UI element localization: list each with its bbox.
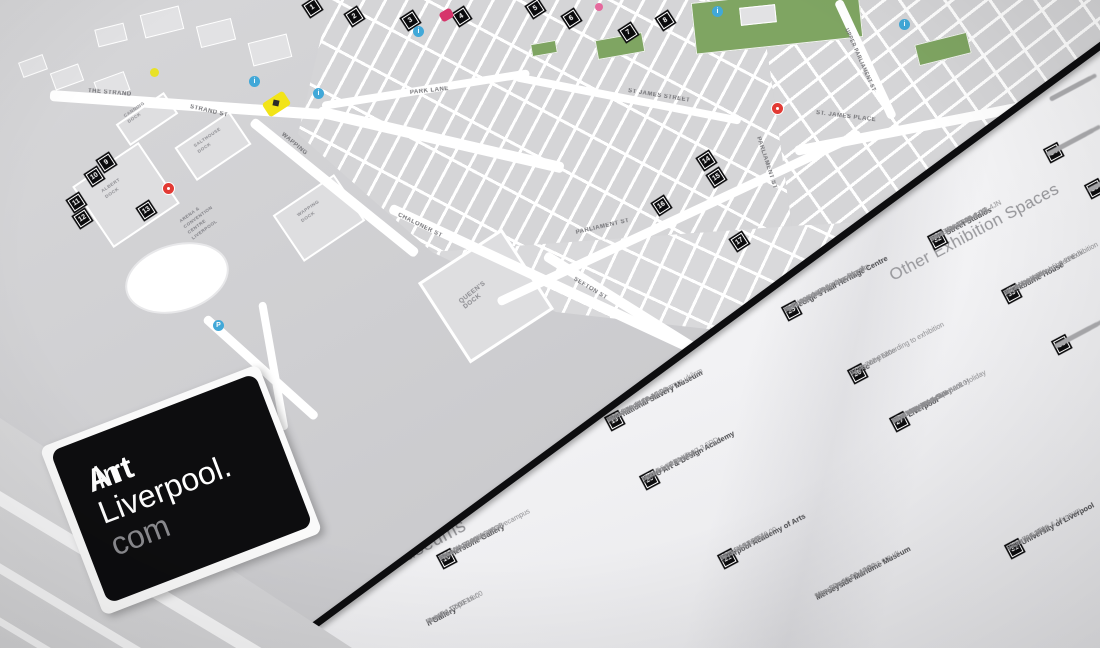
wapping-dock-shape — [273, 174, 366, 262]
salthouse-dock-shape — [174, 111, 251, 181]
pink-dot-marker — [595, 3, 603, 11]
arena-oval — [119, 233, 235, 323]
building-block — [18, 54, 48, 78]
info-icon: i — [899, 19, 910, 30]
building-block — [140, 6, 185, 39]
red-info-marker — [162, 182, 175, 195]
red-info-marker — [771, 102, 784, 115]
building-block — [248, 34, 293, 67]
info-icon: i — [413, 26, 424, 37]
map-marker-badge: 1 — [304, 0, 322, 16]
parking-icon: P — [213, 320, 224, 331]
albert-dock-shape — [72, 142, 180, 248]
arena-label: ARENA & CONVENTION CENTRE LIVERPOOL — [178, 198, 222, 241]
building-in-park — [739, 4, 777, 26]
yellow-marker-glyph — [272, 99, 279, 106]
building-block — [50, 63, 84, 90]
building-block — [94, 23, 127, 48]
photo-of-folded-map: THE STRAND STRAND ST WAPPING CHALONER ST… — [0, 0, 1100, 648]
info-icon: i — [712, 6, 723, 17]
yellow-dot-marker — [150, 68, 159, 77]
info-icon: i — [249, 76, 260, 87]
building-block — [196, 18, 236, 48]
heading-other-exhibition-spaces: Other Exhibition Spaces — [886, 179, 1063, 286]
info-icon: i — [313, 88, 324, 99]
